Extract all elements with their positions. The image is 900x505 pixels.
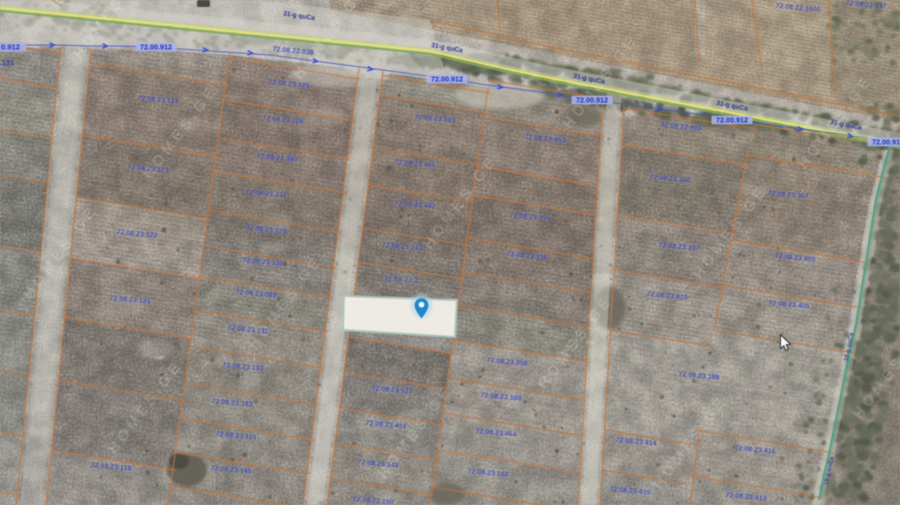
- svg-text:72.00.912: 72.00.912: [716, 115, 748, 124]
- svg-text:72.00.912: 72.00.912: [431, 74, 463, 83]
- svg-text:napr: napr: [155, 355, 165, 361]
- svg-text:72.00.912: 72.00.912: [576, 95, 608, 104]
- svg-text:72.00.912: 72.00.912: [872, 137, 900, 146]
- svg-text:napr: napr: [586, 340, 596, 346]
- svg-text:72.00.912: 72.00.912: [140, 42, 172, 51]
- svg-text:0.912: 0.912: [1, 43, 20, 52]
- svg-text:.131: .131: [0, 58, 14, 67]
